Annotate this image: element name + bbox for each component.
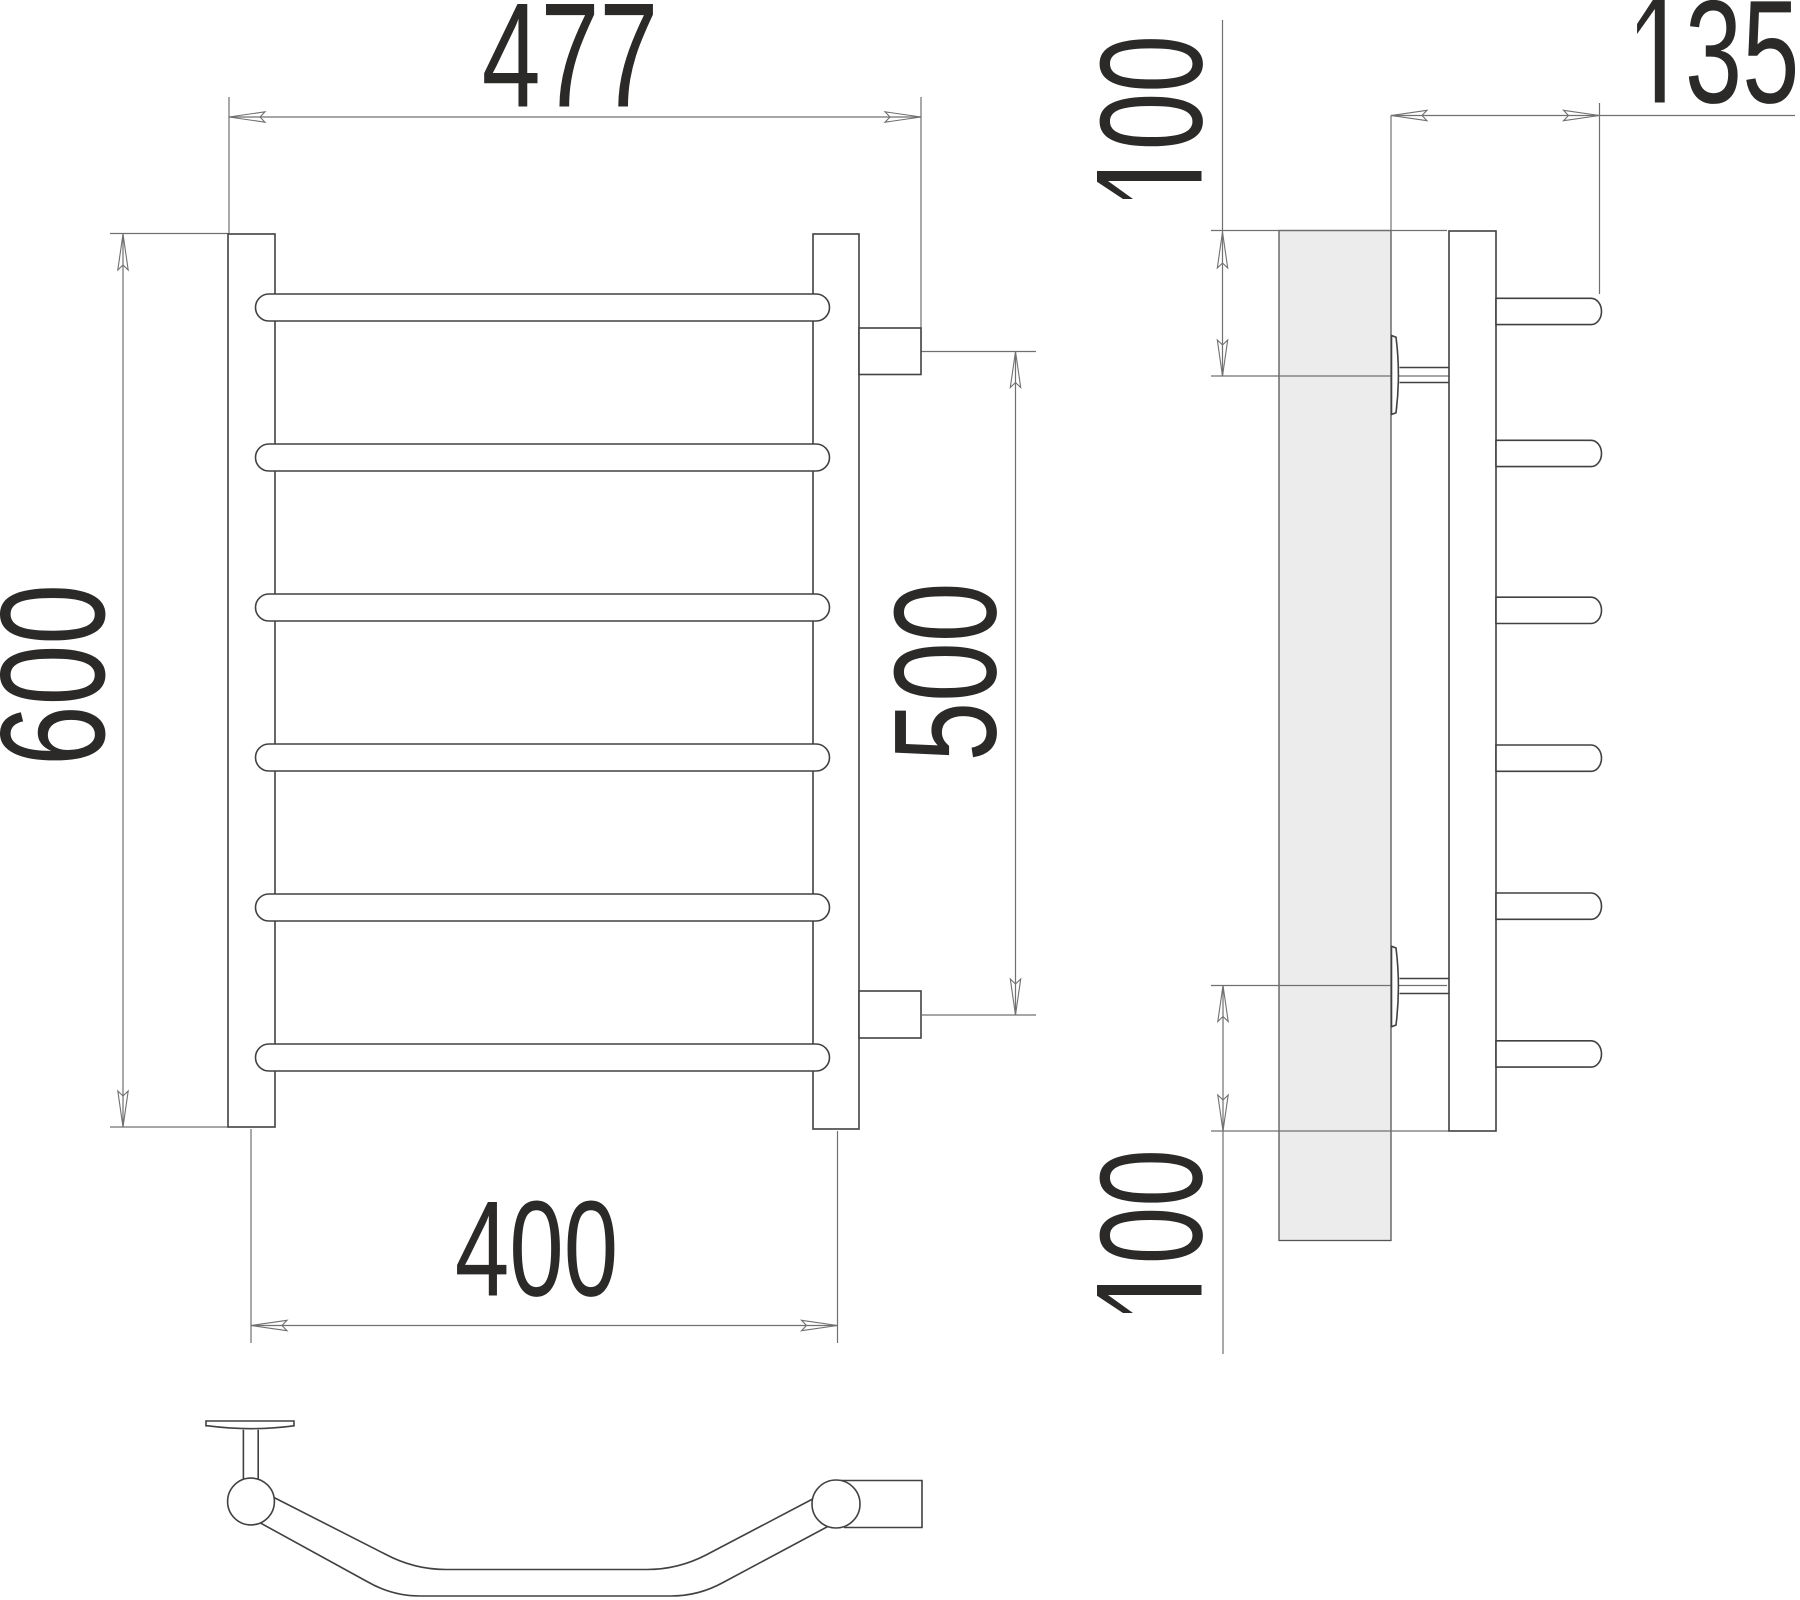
svg-text:477: 477 (482, 0, 658, 139)
svg-text:35: 35 (1685, 0, 1799, 134)
svg-text:400: 400 (455, 1174, 618, 1325)
svg-text:500: 500 (864, 582, 1027, 761)
svg-text:00: 00 (1069, 1149, 1233, 1264)
svg-text:00: 00 (1069, 35, 1233, 150)
svg-text:600: 600 (0, 584, 136, 766)
